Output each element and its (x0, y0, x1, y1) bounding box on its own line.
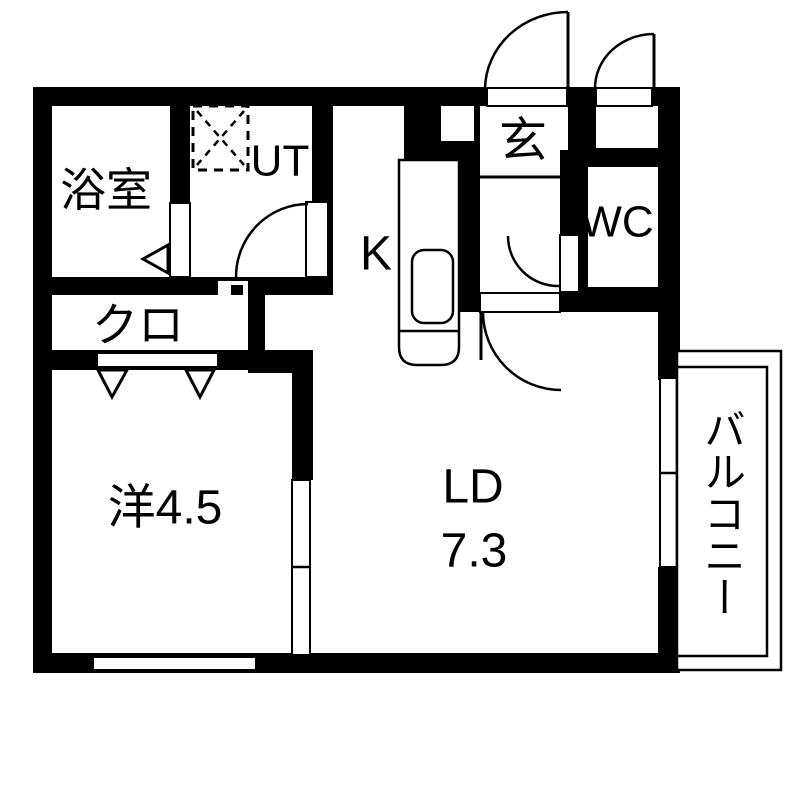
room-label-western-room: 洋4.5 (108, 482, 223, 535)
wall-left (33, 87, 52, 673)
room-label-balcony: バルコニー (699, 408, 746, 618)
entrance-door-opening (487, 88, 567, 106)
wall-wc-top (586, 148, 658, 167)
room-label-entrance: 玄 (499, 115, 547, 168)
floor-plan-drawing: 浴室 UT K 玄 WC クロ 洋4.5 LD 7.3 バルコニー (0, 0, 799, 800)
floor-plan: 浴室 UT K 玄 WC クロ 洋4.5 LD 7.3 バルコニー (0, 0, 799, 800)
shoe-cabinet-niche (441, 106, 474, 141)
wall-mid-horizontal (33, 277, 330, 295)
wall-right-upper (658, 87, 680, 380)
room-label-living-dining: LD (442, 461, 503, 514)
wc-door-leaf (560, 235, 579, 292)
room-label-kitchen: K (360, 228, 392, 281)
wall-entrance-pillar (568, 87, 596, 150)
room-label-utility: UT (251, 137, 310, 186)
ld-door-opening (480, 293, 560, 312)
kitchen-sink-icon (412, 250, 453, 323)
kitchen-counter (399, 160, 459, 365)
window-ld-east (660, 378, 677, 567)
window-western-south (93, 657, 256, 670)
bath-door-opening (170, 203, 190, 277)
room-label-living-dining-size: 7.3 (441, 525, 508, 578)
wall-western-ld-upper (292, 373, 313, 480)
wall-kitchen-corridor (458, 152, 480, 312)
closet-niche-column (231, 285, 243, 295)
closet-door-bar (97, 353, 218, 367)
storage-door-opening (596, 88, 652, 106)
room-label-bath: 浴室 (60, 164, 152, 216)
wall-bath-right (170, 103, 190, 203)
ut-door-leaf (306, 202, 328, 277)
wall-closet-right-vertical (248, 295, 265, 350)
room-label-toilet: WC (580, 198, 653, 247)
room-label-closet: クロ (92, 299, 184, 351)
wall-closet-right-horizontal (248, 350, 313, 373)
window-western-ld (292, 480, 310, 655)
